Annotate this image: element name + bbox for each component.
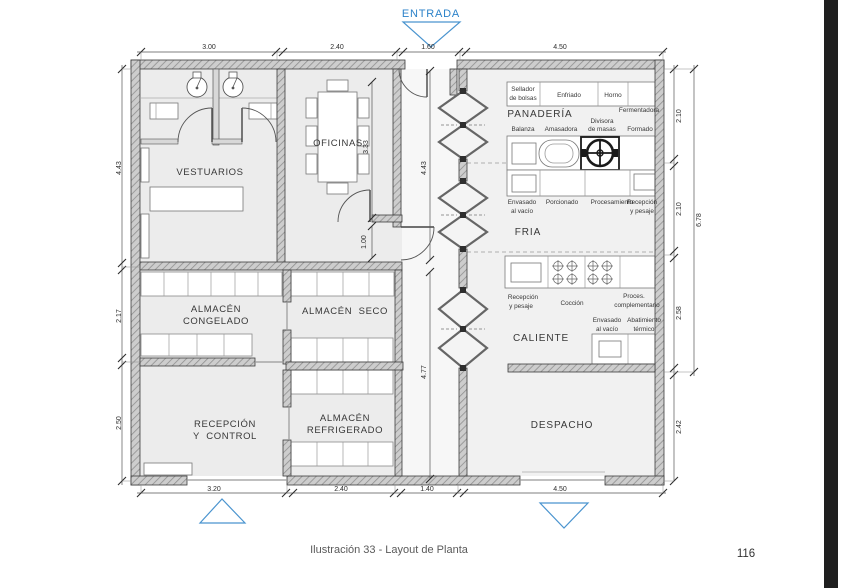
equip-label-fermentadora: Fermentadora: [619, 107, 660, 114]
reception-counter: [144, 463, 192, 475]
equip-label-abatimiento: Abatimiento: [627, 317, 661, 324]
dim-right-3: 2.42: [676, 420, 683, 434]
equip-label-horno: Horno: [604, 92, 622, 99]
flow-arrow-in: [200, 499, 245, 523]
equip-label-abatimiento: térmico: [634, 326, 655, 333]
dim-top-3: 4.50: [553, 44, 567, 51]
bench: [249, 103, 277, 119]
weighing-box-icon: [511, 263, 541, 282]
shelving-unit: [141, 272, 282, 296]
equip-label-coccion: Cocción: [560, 300, 584, 307]
vacuum-packer-icon: [599, 341, 621, 357]
dim-top-1: 2.40: [330, 44, 344, 51]
dim-right-total: 6.78: [696, 213, 703, 227]
dim-bottom-2: 1.40: [420, 486, 434, 493]
equip-label-recepcion-pesaje: y pesaje: [630, 208, 654, 215]
shelving-unit: [291, 370, 393, 394]
equip-label-sellador: Sellador: [511, 86, 535, 93]
shelving-unit: [291, 338, 393, 362]
equip-label-envasado-caliente: al vacío: [596, 326, 618, 333]
reception-box-icon: [634, 174, 655, 190]
equip-label-enfriado: Enfriado: [557, 92, 581, 99]
room-label-caliente: CALIENTE: [513, 333, 569, 344]
equip-label-sellador: de bolsas: [509, 95, 536, 102]
room-label-refrigerado: ALMACÉN: [320, 413, 370, 424]
dim-left-1: 2.17: [116, 309, 123, 323]
entrance-label: ENTRADA: [402, 8, 460, 20]
shelving-unit: [141, 334, 252, 356]
dim-oficinas: 3.33: [363, 140, 370, 154]
dim-top-2: 1.60: [421, 44, 435, 51]
shelving-unit: [291, 272, 394, 296]
equip-label-recepcion-pesaje: Recepción: [508, 294, 539, 301]
floor-plan-page: ENTRADA VESTUARIOS OFICINAS PANADERÍA FR…: [0, 0, 847, 588]
equip-label-divisora: de masas: [588, 126, 616, 133]
room-label-congelado: CONGELADO: [183, 316, 249, 327]
room-label-vestuarios: VESTUARIOS: [176, 167, 243, 178]
room-label-panaderia: PANADERÍA: [507, 107, 572, 120]
bench: [150, 103, 178, 119]
room-label-seco: ALMACÉN SECO: [302, 306, 388, 317]
figure-caption: Ilustración 33 - Layout de Planta: [310, 544, 469, 556]
dough-divider-icon: [581, 137, 619, 170]
equip-label-porcionado: Porcionado: [546, 199, 579, 206]
dim-bottom-1: 2.40: [334, 486, 348, 493]
room-label-refrigerado: REFRIGERADO: [307, 425, 383, 436]
equip-label-proces: Proces.: [623, 293, 645, 300]
meeting-table: [318, 92, 357, 182]
equip-label-balanza: Balanza: [511, 126, 535, 133]
room-label-despacho: DESPACHO: [531, 420, 594, 431]
locker: [141, 148, 149, 182]
room-label-congelado: ALMACÉN: [191, 304, 241, 315]
dim-door: 1.00: [361, 235, 368, 249]
equip-label-envasado: al vacío: [511, 208, 533, 215]
dim-right-0: 2.10: [676, 109, 683, 123]
flow-arrow-out: [540, 503, 588, 528]
shelving-unit: [291, 442, 393, 466]
dim-right-2: 2.58: [676, 306, 683, 320]
dim-hall-bottom: 4.77: [421, 365, 428, 379]
room-label-recepcion: Y CONTROL: [193, 431, 257, 442]
page-number: 116: [737, 548, 755, 560]
dim-bottom-3: 4.50: [553, 486, 567, 493]
scale-icon: [512, 143, 536, 164]
equip-label-recepcion-pesaje: Recepción: [627, 199, 658, 206]
equip-label-envasado-caliente: Envasado: [593, 317, 622, 324]
equip-label-recepcion-pesaje: y pesaje: [509, 303, 533, 310]
locker: [141, 214, 149, 258]
room-label-fria: FRIA: [515, 227, 541, 238]
dim-left-0: 4.43: [116, 161, 123, 175]
dim-hall-top: 4.43: [421, 161, 428, 175]
dim-bottom-0: 3.20: [207, 486, 221, 493]
vacuum-packer-icon: [512, 175, 536, 192]
toilet-partition: [213, 69, 219, 145]
equip-label-divisora: Divisora: [590, 118, 614, 125]
bench-long: [150, 187, 243, 211]
dim-right-1: 2.10: [676, 202, 683, 216]
equip-label-envasado: Envasado: [508, 199, 537, 206]
room-label-oficinas: OFICINAS: [313, 138, 363, 149]
equip-label-amasadora: Amasadora: [545, 126, 578, 133]
equip-label-proces: complementario: [614, 302, 660, 309]
room-label-recepcion: RECEPCIÓN: [194, 419, 256, 430]
dim-left-2: 2.50: [116, 416, 123, 430]
equip-label-formado: Formado: [627, 126, 653, 133]
dim-top-0: 3.00: [202, 44, 216, 51]
pdf-edge-bar: [824, 0, 838, 588]
